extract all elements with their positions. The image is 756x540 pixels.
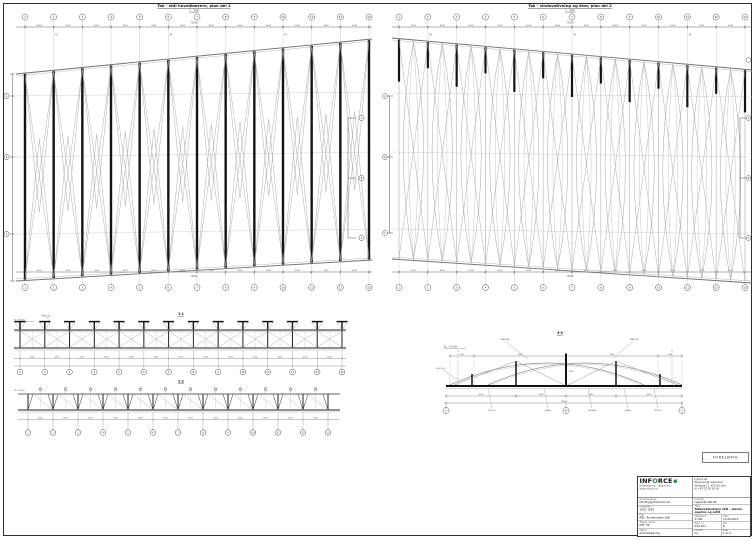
svg-text:10: 10 [281, 15, 285, 19]
svg-text:12: 12 [715, 15, 719, 19]
svg-text:6000: 6000 [151, 25, 157, 27]
svg-text:6000: 6000 [94, 25, 100, 27]
svg-text:1-1: 1-1 [178, 312, 184, 316]
svg-text:C: C [681, 408, 683, 412]
svg-text:1500: 1500 [569, 371, 575, 373]
logo-url: www.inforce.no [640, 488, 692, 491]
title-block-meta-grid: Målestokk1:100Dato12.06.2015Tegn. nr.K20… [693, 515, 750, 536]
svg-text:6000: 6000 [526, 25, 532, 27]
svg-text:10: 10 [657, 15, 661, 19]
svg-text:HSQ 120: HSQ 120 [436, 368, 446, 370]
svg-text:HE120A: HE120A [42, 315, 51, 318]
svg-text:18000: 18000 [561, 401, 568, 403]
logo-leaf-icon [674, 480, 678, 484]
elevation-1-drawing: 1-1EL +8.000HE120A1234567891011121314600… [14, 312, 348, 375]
svg-text:3000: 3000 [539, 394, 545, 396]
svg-text:Ø48.3: Ø48.3 [545, 409, 551, 412]
svg-text:10: 10 [241, 371, 244, 374]
svg-text:13: 13 [367, 285, 371, 289]
approval-stamp: FORELØPIG [702, 452, 749, 463]
svg-text:6000: 6000 [209, 270, 215, 272]
svg-text:Ø48.3: Ø48.3 [625, 409, 631, 412]
svg-text:6000: 6000 [411, 25, 417, 27]
svg-text:13: 13 [743, 15, 747, 19]
title-block: INFORCE prosjektering - rådgivning www.i… [637, 476, 751, 537]
svg-text:11: 11 [310, 285, 314, 289]
meta-value: K20-101 [695, 525, 720, 528]
svg-text:6000: 6000 [237, 25, 243, 27]
plan-left-drawing: Tak - stål hovedbærere, plan del 11 : 10… [4, 3, 372, 291]
svg-text:6000: 6000 [266, 270, 272, 272]
cad-drawing-sheet: Tak - stål hovedbærere, plan del 11 : 10… [0, 0, 756, 540]
svg-text:Ø88.9x4: Ø88.9x4 [630, 338, 639, 341]
elevation-2-drawing: 2-2EL +8.00012345678910111213S16000S1600… [14, 380, 340, 436]
svg-text:6000: 6000 [440, 270, 446, 272]
svg-text:S1: S1 [264, 387, 266, 389]
svg-text:EL. +10.800: EL. +10.800 [444, 346, 458, 349]
svg-text:6000: 6000 [440, 25, 446, 27]
svg-text:1 : 100: 1 : 100 [565, 9, 575, 13]
title-block-row: Tegnet / Kontr.MH / TK [638, 521, 693, 529]
svg-text:6000: 6000 [497, 270, 503, 272]
title-block-info-rows: OppdragsgiverNordbygg Eiendom ASProsjekt… [638, 498, 693, 536]
logo-text-pre: INF [640, 478, 653, 486]
svg-text:6000: 6000 [295, 270, 301, 272]
svg-text:6000: 6000 [37, 25, 43, 27]
svg-text:S1: S1 [289, 387, 291, 389]
row-value: Nordbygg Eiendom AS [640, 501, 692, 504]
svg-text:6000: 6000 [123, 270, 129, 272]
meta-value: A1 [695, 532, 720, 535]
project-value: Lagerhall felt B2 [695, 501, 749, 504]
svg-text:6000: 6000 [497, 25, 503, 27]
svg-text:6000: 6000 [37, 270, 43, 272]
svg-text:6000: 6000 [728, 25, 734, 27]
svg-text:6000: 6000 [699, 25, 705, 27]
svg-text:S1: S1 [314, 387, 316, 389]
svg-text:6000: 6000 [584, 25, 590, 27]
svg-text:P1: P1 [55, 34, 58, 37]
logo-wordmark: INFORCE [640, 478, 692, 485]
svg-text:6000: 6000 [555, 25, 561, 27]
meta-value: 1 av 1 [723, 532, 749, 535]
svg-text:72000: 72000 [567, 21, 575, 24]
row-value: MH / TK [640, 524, 692, 527]
svg-text:S1: S1 [39, 387, 41, 389]
stamp-text: FORELØPIG [713, 456, 738, 460]
title-block-left-column: INFORCE prosjektering - rådgivning www.i… [638, 477, 693, 536]
svg-text:13: 13 [743, 285, 747, 289]
svg-text:Tak - stål hovedbærere, plan d: Tak - stål hovedbærere, plan del 1 [157, 3, 231, 8]
svg-text:S1: S1 [89, 387, 91, 389]
svg-text:6000: 6000 [65, 270, 71, 272]
svg-text:A: A [445, 408, 447, 412]
meta-value: 1:100 [695, 518, 720, 521]
svg-text:1 : 100: 1 : 100 [189, 9, 199, 13]
svg-text:S1: S1 [114, 387, 116, 389]
svg-text:10: 10 [281, 285, 285, 289]
svg-text:Ø88.9x4: Ø88.9x4 [501, 338, 510, 341]
section-3-drawing: 3-3EL. +10.80060036003600600150045003000… [436, 331, 685, 414]
svg-text:4500: 4500 [647, 394, 653, 396]
svg-text:P2: P2 [429, 34, 432, 37]
svg-text:6000: 6000 [295, 25, 301, 27]
row-value: 2015-1042 [640, 509, 692, 512]
svg-text:B: B [565, 408, 567, 412]
svg-text:S1: S1 [239, 387, 241, 389]
meta-cell: Målestokk1:100 [693, 515, 722, 522]
svg-text:IPE 270: IPE 270 [488, 410, 496, 412]
svg-text:HE140B: HE140B [588, 410, 596, 412]
svg-text:6000: 6000 [613, 25, 619, 27]
meta-value: B [723, 525, 749, 528]
svg-text:13: 13 [367, 15, 371, 19]
svg-text:Tak - vindavstivning og åser,: Tak - vindavstivning og åser, plan del 2 [528, 3, 612, 8]
svg-text:11: 11 [686, 285, 690, 289]
svg-text:P1: P1 [285, 34, 288, 37]
svg-text:P2: P2 [689, 34, 692, 37]
meta-cell: FormatA1 [693, 529, 722, 536]
svg-text:S1: S1 [214, 387, 216, 389]
svg-text:6000: 6000 [94, 270, 100, 272]
svg-text:P1: P1 [170, 34, 173, 37]
svg-text:6000: 6000 [469, 25, 475, 27]
meta-cell: Rev.B [722, 522, 751, 529]
svg-text:6000: 6000 [323, 270, 329, 272]
svg-text:S1: S1 [164, 387, 166, 389]
svg-text:11: 11 [686, 15, 690, 19]
svg-text:EL +8.000: EL +8.000 [14, 389, 25, 392]
title-block-row: StatusArbeidstegning [638, 529, 693, 536]
svg-text:6000: 6000 [352, 25, 358, 27]
svg-text:6000: 6000 [323, 25, 329, 27]
svg-text:3-3: 3-3 [557, 331, 563, 335]
svg-text:12: 12 [291, 371, 294, 374]
svg-text:6000: 6000 [123, 25, 129, 27]
svg-text:12: 12 [715, 285, 719, 289]
drawing-title-row: Tittel Takkonstruksjon stål - planer, op… [693, 505, 750, 515]
svg-text:12: 12 [339, 15, 343, 19]
svg-text:12: 12 [339, 285, 343, 289]
svg-text:IPE 270: IPE 270 [654, 410, 662, 412]
meta-cell: Blad1 av 1 [722, 529, 751, 536]
title-block-row: OppdragsgiverNordbygg Eiendom AS [638, 498, 693, 506]
svg-text:11: 11 [266, 371, 269, 374]
svg-text:6000: 6000 [266, 25, 272, 27]
title-block-row: Prosjektnr.2015-1042 [638, 506, 693, 514]
meta-cell: Dato12.06.2015 [722, 515, 751, 522]
svg-text:72000: 72000 [567, 275, 575, 278]
svg-text:S1: S1 [189, 387, 191, 389]
plan-right-drawing: Tak - vindavstivning og åser, plan del 2… [383, 3, 752, 291]
title-value: Takkonstruksjon stål - planer, oppriss o… [695, 508, 749, 514]
svg-text:6000: 6000 [526, 270, 532, 272]
meta-value: 12.06.2015 [723, 518, 749, 521]
row-value: Arbeidstegning [640, 532, 692, 535]
svg-text:S1: S1 [64, 387, 66, 389]
title-block-right-column: Inforce ASRådgivende ingeniørerStorgata … [693, 477, 750, 536]
svg-text:6000: 6000 [642, 25, 648, 27]
svg-text:11: 11 [310, 15, 314, 19]
svg-text:6000: 6000 [180, 25, 186, 27]
svg-text:10: 10 [657, 285, 661, 289]
svg-text:S1: S1 [139, 387, 141, 389]
svg-text:6000: 6000 [209, 25, 215, 27]
company-logo: INFORCE prosjektering - rådgivning www.i… [638, 477, 693, 498]
svg-text:2-2: 2-2 [178, 380, 184, 384]
svg-text:3600: 3600 [610, 354, 616, 356]
svg-text:6000: 6000 [65, 25, 71, 27]
svg-text:72000: 72000 [191, 275, 199, 278]
project-row: Prosjekt Lagerhall felt B2 [693, 498, 750, 505]
svg-text:72000: 72000 [191, 21, 199, 24]
svg-text:4500: 4500 [479, 394, 485, 396]
svg-text:6000: 6000 [670, 25, 676, 27]
address-line: tlf +47 22 00 00 00 [695, 488, 749, 491]
drawing-canvas: Tak - stål hovedbærere, plan del 11 : 10… [0, 0, 756, 540]
svg-text:6000: 6000 [237, 270, 243, 272]
svg-text:6000: 6000 [411, 270, 417, 272]
svg-text:6000: 6000 [469, 270, 475, 272]
company-address: Inforce ASRådgivende ingeniørerStorgata … [693, 477, 750, 498]
meta-cell: Tegn. nr.K20-101 [693, 522, 722, 529]
logo-text-post: RCE [658, 478, 673, 486]
title-block-row: FagRIB - Konstruksjon stål [638, 513, 693, 521]
row-value: RIB - Konstruksjon stål [640, 516, 692, 519]
svg-text:6000: 6000 [352, 270, 358, 272]
svg-text:P2: P2 [574, 34, 577, 37]
